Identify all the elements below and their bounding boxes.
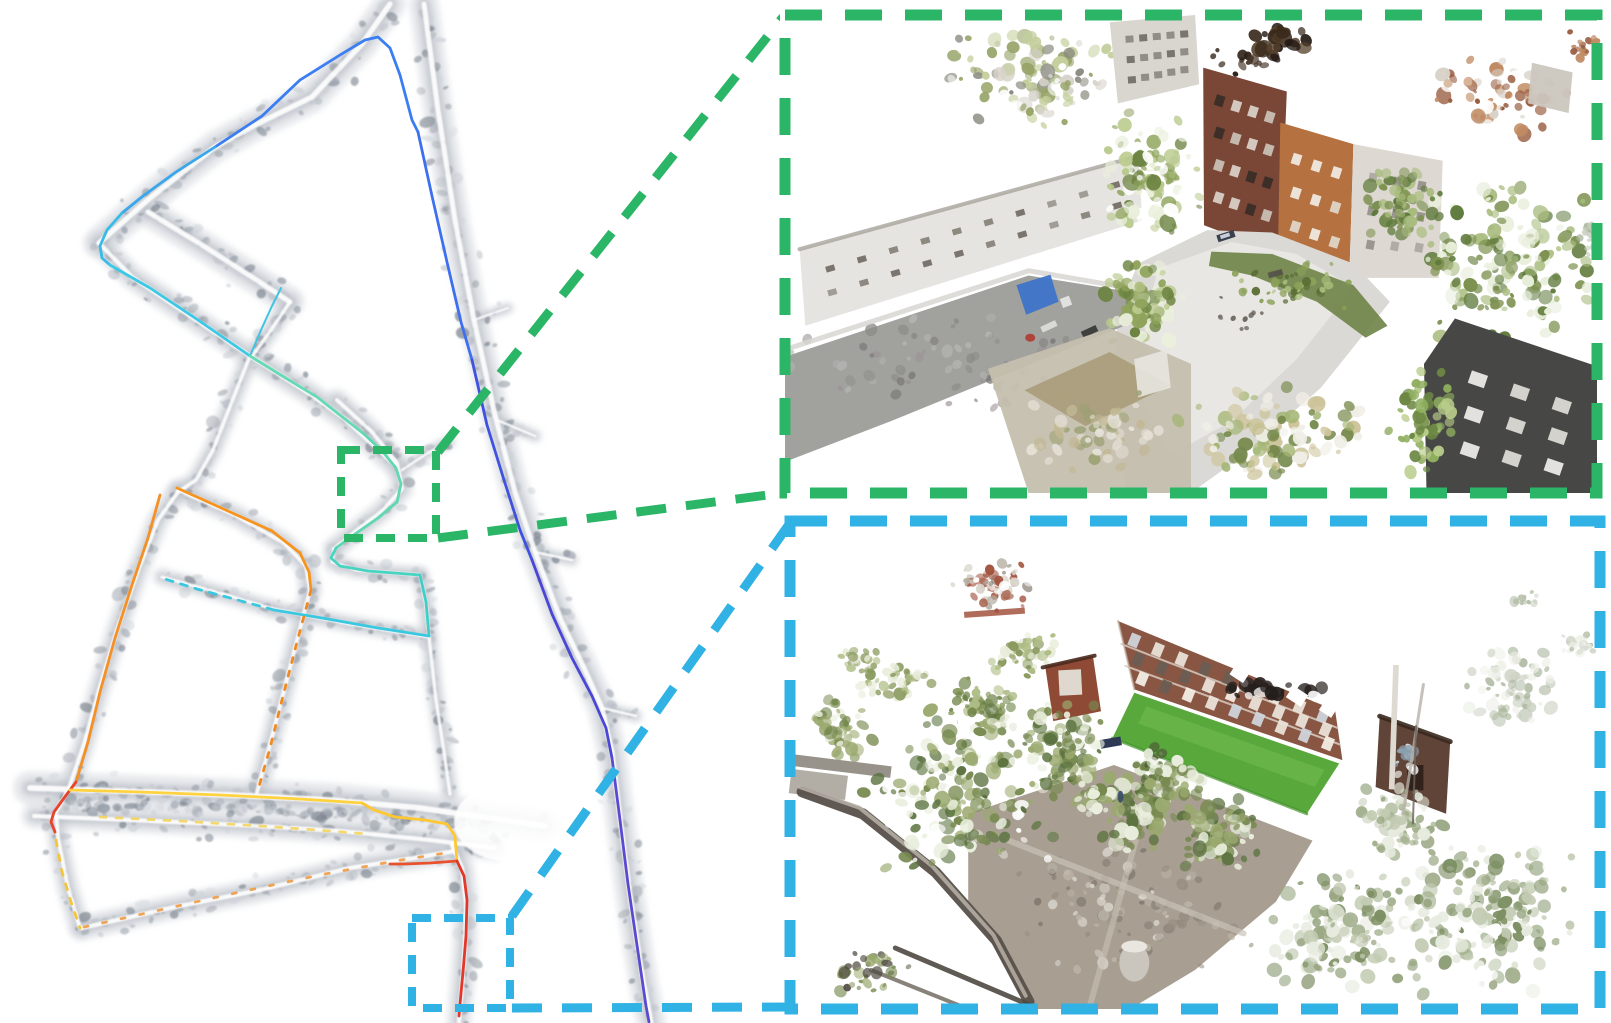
- map-open-plaza: [522, 842, 602, 902]
- scene-foliage-blob: [1449, 256, 1456, 262]
- scene-window: [1126, 56, 1134, 64]
- green-panel-scene: [777, 7, 1608, 501]
- scene-window: [1154, 71, 1162, 79]
- scene-window: [1167, 50, 1175, 58]
- scene-ellipse: [1025, 334, 1035, 342]
- scene-window: [1153, 33, 1161, 41]
- scene-window: [1167, 68, 1175, 76]
- scene-foliage-blob: [1269, 944, 1281, 958]
- scene-window: [1390, 241, 1400, 251]
- scene-window: [1125, 35, 1133, 43]
- scene-window: [1180, 30, 1188, 38]
- scene-foliage-blob: [1525, 228, 1539, 244]
- scene-foliage-blob: [1068, 889, 1075, 896]
- scene-window: [1153, 52, 1161, 60]
- blue-panel-scene: [782, 513, 1608, 1017]
- scene-window: [1141, 74, 1149, 82]
- scene-foliage-blob: [976, 584, 985, 594]
- green-connector-bottom: [438, 493, 783, 538]
- scene-window: [1139, 34, 1147, 42]
- scene-window: [1166, 31, 1174, 39]
- scene-window: [1366, 240, 1376, 250]
- scene-window: [1180, 48, 1188, 56]
- scene-window: [1180, 66, 1188, 74]
- scene-window: [1414, 243, 1424, 253]
- reconstruction-figure-canvas: [0, 0, 1611, 1023]
- scene-block: [1058, 669, 1082, 696]
- figure-root: [0, 0, 1611, 1023]
- scene-ellipse: [1118, 791, 1124, 803]
- scene-foliage-blob: [846, 664, 856, 672]
- blue-zoom-panel: [782, 513, 1608, 1017]
- scene-foliage-blob: [1184, 846, 1192, 851]
- green-zoom-panel: [777, 7, 1608, 501]
- scene-window: [1140, 54, 1148, 62]
- scene-ellipse: [1121, 941, 1147, 953]
- scene-window: [1128, 76, 1136, 84]
